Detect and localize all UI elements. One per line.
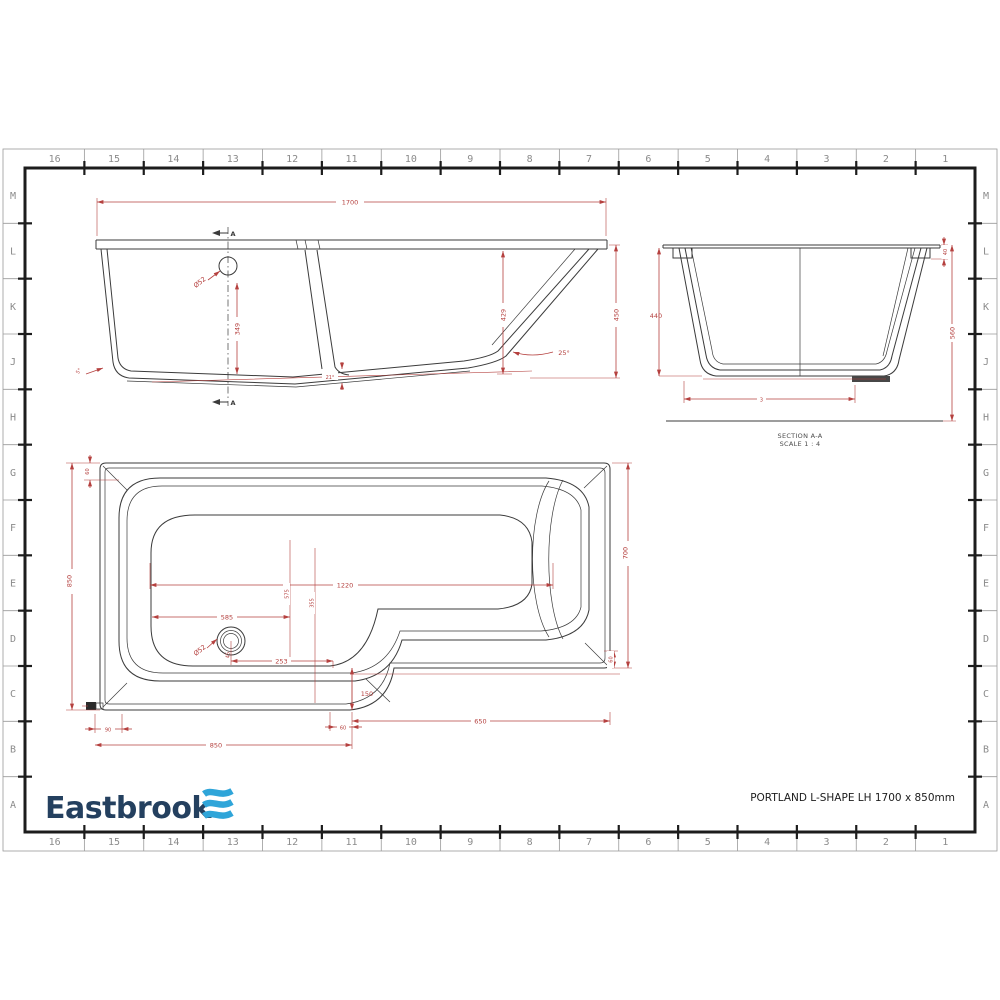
grid-row-label: A (10, 800, 16, 811)
grid-row-label: F (10, 523, 16, 534)
dim-waste-to-step: 253 (275, 658, 287, 666)
grid-column-label: 14 (167, 154, 179, 165)
sheet-border (3, 149, 997, 851)
grid-row-label: H (983, 413, 989, 424)
dim-rim-top: 60 (85, 468, 91, 474)
grid-column-label: 9 (467, 154, 473, 165)
grid-band-bottom: 16151413121110987654321 (49, 825, 949, 851)
grid-row-label: L (983, 247, 989, 258)
grid-row-label: E (983, 579, 989, 590)
grid-column-label: 6 (645, 154, 651, 165)
dim-waste-diameter: Ø52 (192, 275, 207, 290)
dim-inner-depth: 429 (500, 309, 508, 321)
dim-overall-height: 450 (613, 309, 621, 321)
grid-row-label: C (983, 689, 989, 700)
dim-waste-height: 349 (234, 323, 242, 335)
dim-narrow-length: 650 (474, 718, 486, 726)
grid-column-label: 4 (764, 837, 770, 848)
dim-seat-depth: 355 (310, 598, 316, 608)
grid-row-label: B (10, 745, 16, 756)
grid-column-label: 2 (883, 837, 889, 848)
grid-column-label: 1 (942, 154, 948, 165)
grid-column-label: 10 (405, 837, 417, 848)
grid-column-label: 2 (883, 154, 889, 165)
dim-overall-width: 850 (66, 575, 74, 587)
dim-waste-offset: 45 (226, 652, 232, 658)
grid-row-label: D (983, 634, 989, 645)
brand-wave-icon (204, 791, 232, 816)
grid-column-label: 10 (405, 154, 417, 165)
dim-overall-length: 1700 (342, 199, 359, 207)
grid-row-label: M (10, 191, 16, 202)
grid-row-label: K (983, 302, 989, 313)
grid-row-label: H (10, 413, 16, 424)
grid-column-label: 13 (227, 837, 239, 848)
dim-rim-height: 40 (943, 249, 949, 255)
grid-band-top: 16151413121110987654321 (49, 149, 949, 175)
side-elevation-linework: A A (96, 227, 607, 407)
grid-column-label: 8 (527, 837, 533, 848)
grid-row-label: M (983, 191, 989, 202)
dim-step-height: 150 (361, 690, 373, 698)
drawing-title: PORTLAND L-SHAPE LH 1700 x 850mm (750, 792, 955, 804)
grid-column-label: 8 (527, 154, 533, 165)
grid-column-label: 12 (286, 154, 298, 165)
drawing-sheet: 16151413121110987654321 1615141312111098… (0, 0, 1000, 1000)
grid-row-label: G (983, 468, 989, 479)
grid-column-label: 16 (49, 154, 61, 165)
dim-wide-length: 850 (210, 742, 222, 750)
footer: Eastbrook PORTLAND L-SHAPE LH 1700 x 850… (45, 791, 955, 826)
grid-column-label: 3 (824, 837, 830, 848)
grid-column-label: 11 (346, 154, 358, 165)
dim-end-slope: 25° (558, 349, 570, 357)
grid-row-label: F (983, 523, 989, 534)
grid-column-label: 16 (49, 837, 61, 848)
grid-column-label: 7 (586, 154, 592, 165)
section-scale: SCALE 1 : 4 (780, 440, 821, 448)
grid-row-label: E (10, 579, 16, 590)
grid-column-label: 12 (286, 837, 298, 848)
side-elevation-view: A A 1700 429 450 349 Ø52 25° 5° (75, 198, 620, 407)
grid-column-label: 14 (167, 837, 179, 848)
grid-column-label: 11 (346, 837, 358, 848)
grid-column-label: 3 (824, 154, 830, 165)
grid-column-label: 15 (108, 837, 120, 848)
grid-row-label: J (10, 357, 16, 368)
grid-band-right: MLKJHGFEDCBA (968, 191, 997, 811)
dim-waste-from-top: 575 (285, 589, 291, 599)
grid-column-label: 1 (942, 837, 948, 848)
section-marker-top: A (230, 230, 235, 238)
grid-row-label: L (10, 247, 16, 258)
dim-waste-from-left: 585 (221, 614, 233, 622)
brand-logo-text: Eastbrook (45, 791, 212, 826)
grid-column-label: 6 (645, 837, 651, 848)
grid-column-label: 13 (227, 154, 239, 165)
side-elevation-dimensions: 1700 429 450 349 Ø52 25° 5° 21° (75, 198, 620, 390)
section-title: SECTION A-A (778, 432, 823, 440)
grid-column-label: 7 (586, 837, 592, 848)
section-linework (663, 245, 943, 421)
section-cut-arrows (212, 230, 220, 405)
plan-view: 60 850 1220 575 355 585 Ø52 45 253 150 6… (66, 455, 633, 750)
section-marker-bottom: A (230, 399, 235, 407)
grid-band-left: MLKJHGFEDCBA (3, 191, 32, 811)
dim-plan-waste-diameter: Ø52 (192, 643, 207, 658)
dim-rim-bottom-left: 90 (105, 728, 111, 734)
technical-drawing-svg: 16151413121110987654321 1615141312111098… (0, 0, 1000, 1000)
grid-column-label: 5 (705, 154, 711, 165)
grid-row-label: J (983, 357, 989, 368)
grid-row-label: A (983, 800, 989, 811)
dim-bottom-slope: 21° (326, 375, 335, 381)
grid-row-label: D (10, 634, 16, 645)
grid-row-label: K (10, 302, 16, 313)
dim-rim-right: 60 (609, 656, 615, 662)
dim-step-width: 60 (340, 726, 346, 732)
dim-front-slope: 5° (75, 367, 83, 376)
plan-dimensions: 60 850 1220 575 355 585 Ø52 45 253 150 6… (66, 455, 633, 750)
grid-row-label: C (10, 689, 16, 700)
dim-inner-length: 1220 (337, 582, 354, 590)
dim-section-overall-height: 560 (949, 327, 957, 339)
grid-column-label: 4 (764, 154, 770, 165)
grid-row-label: G (10, 468, 16, 479)
section-aa-view: 440 40 560 3 SECTION A-A SCALE 1 : 4 (650, 237, 957, 448)
grid-row-label: B (983, 745, 989, 756)
dim-section-inner-depth: 440 (650, 312, 662, 320)
dim-bottom-width: 3 (760, 398, 763, 404)
grid-column-label: 15 (108, 154, 120, 165)
grid-column-label: 9 (467, 837, 473, 848)
dim-narrow-width: 700 (622, 547, 630, 559)
grid-column-label: 5 (705, 837, 711, 848)
